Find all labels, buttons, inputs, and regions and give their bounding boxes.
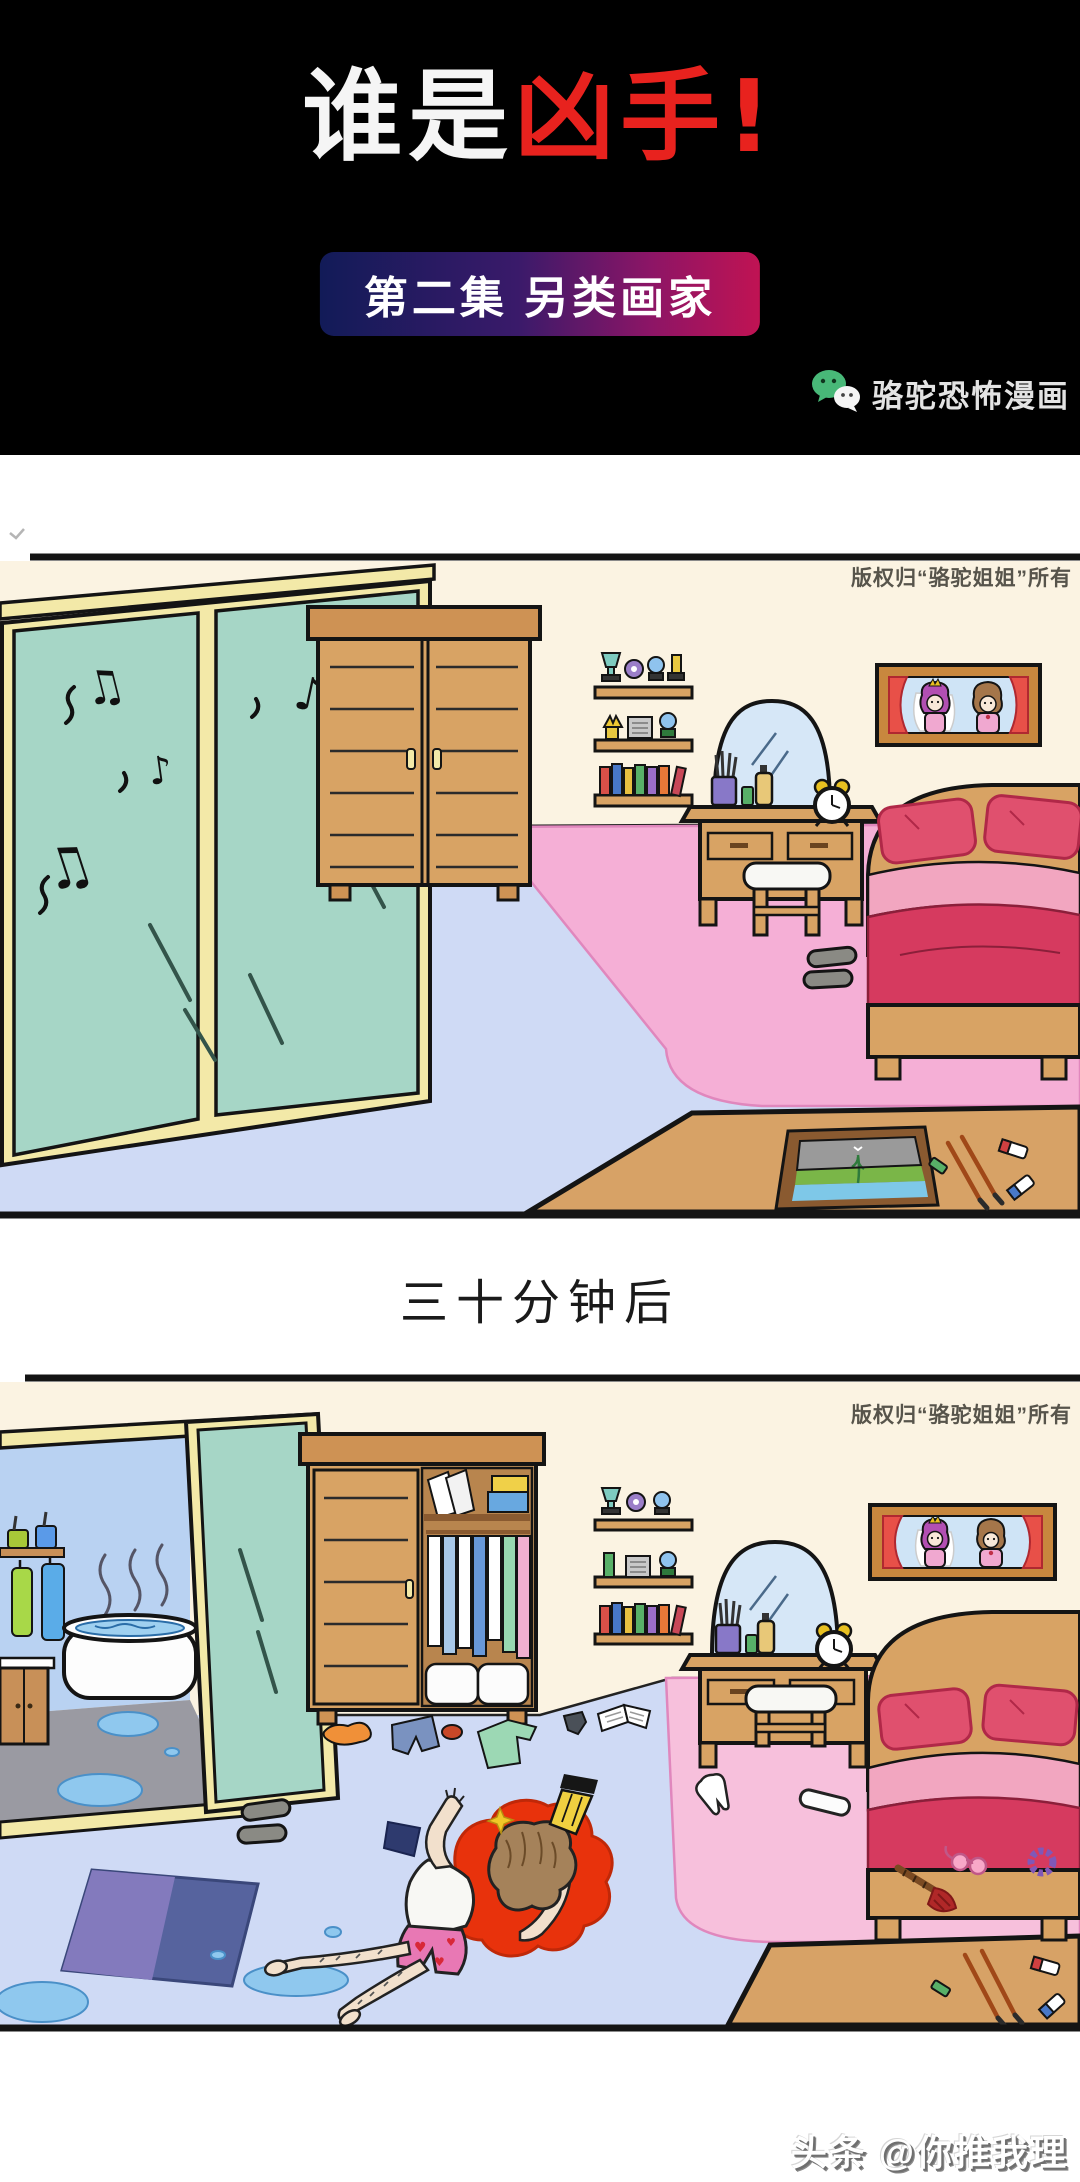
alarm-clock — [817, 1624, 851, 1670]
wardrobe-open — [300, 1434, 544, 1724]
svg-text:♥: ♥ — [414, 1940, 427, 1956]
episode-banner: 第二集 另类画家 — [320, 252, 760, 336]
title-header: 谁是凶手! 第二集 另类画家 骆驼恐怖漫画 — [0, 0, 1080, 455]
comic-page: 谁是凶手! 第二集 另类画家 骆驼恐怖漫画 — [0, 0, 1080, 2182]
time-divider: 三十分钟后 — [0, 1225, 1080, 1370]
wardrobe-interior — [422, 1468, 532, 1706]
comic-panel-1: ♫ ♪ ♫ ♪ — [0, 455, 1080, 1225]
wedding-picture-frame — [877, 665, 1040, 745]
alarm-clock — [815, 780, 849, 826]
cosmetic-tube — [742, 787, 753, 805]
copyright-text: 版权归“骆驼姐姐”所有 — [851, 566, 1072, 590]
time-divider-label: 三十分钟后 — [400, 1263, 680, 1333]
wardrobe-left-door — [314, 1470, 418, 1704]
bathroom — [0, 1414, 338, 1838]
framed-painting — [776, 1127, 938, 1209]
wardrobe-closed — [308, 607, 540, 900]
wood-floor-strip — [728, 1936, 1080, 2025]
bed — [868, 785, 1080, 1079]
friend-figure — [977, 1519, 1005, 1567]
wechat-icon — [810, 368, 862, 419]
floor-rug — [62, 1870, 258, 1986]
sink-cabinet — [0, 1658, 54, 1744]
copyright-text: 版权归“骆驼姐姐”所有 — [851, 1403, 1072, 1427]
comic-panel-2: ♥ ♥ ♥ — [0, 1370, 1080, 2110]
svg-text:♥: ♥ — [446, 1936, 456, 1949]
svg-text:♥: ♥ — [434, 1955, 445, 1969]
title-white-part: 谁是 — [302, 58, 514, 175]
bed — [868, 1612, 1080, 1940]
cosmetic-tube — [746, 1635, 757, 1653]
title-red-part: 凶手! — [514, 58, 778, 175]
publisher-row: 骆驼恐怖漫画 — [810, 368, 1070, 419]
friend-figure — [973, 682, 1002, 733]
watermark-text: 头条 @你推我理 — [791, 2124, 1068, 2176]
page-title: 谁是凶手! — [0, 62, 1080, 172]
footer: 头条 @你推我理 — [0, 2110, 1080, 2182]
bathtub — [64, 1615, 196, 1698]
wedding-picture-frame — [870, 1505, 1055, 1579]
publisher-name: 骆驼恐怖漫画 — [872, 371, 1070, 416]
